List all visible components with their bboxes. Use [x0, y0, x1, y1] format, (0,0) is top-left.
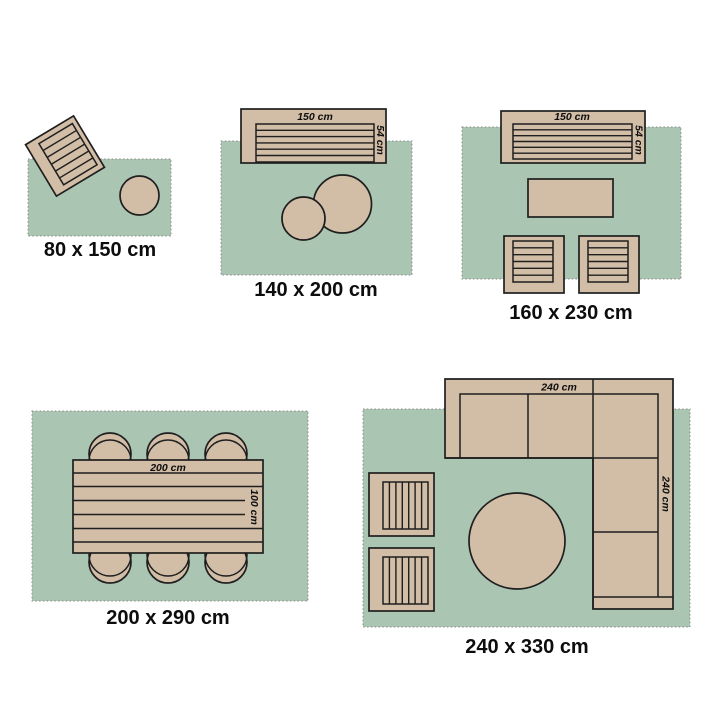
- chair-bottom: [369, 548, 434, 611]
- size-label: 200 x 290 cm: [106, 607, 229, 629]
- round-coffee-table: [469, 493, 565, 589]
- table-width-label: 200 cm: [149, 462, 186, 474]
- diagram-rug-240x330: 240 cm 240 cm 240 x 330 cm: [363, 379, 690, 658]
- diagram-rug-140x200: 150 cm 54 cm 140 x 200 cm: [221, 109, 412, 301]
- sofa-depth-label: 54 cm: [374, 125, 386, 155]
- diagram-rug-160x230: 150 cm 54 cm 160 x 230 cm: [462, 111, 681, 324]
- size-label: 80 x 150 cm: [44, 239, 156, 261]
- size-label: 240 x 330 cm: [465, 636, 588, 658]
- size-label: 160 x 230 cm: [509, 302, 632, 324]
- dining-table: 200 cm 100 cm: [73, 460, 263, 553]
- sofa-depth-label: 240 cm: [660, 475, 672, 512]
- sofa: 150 cm 54 cm: [241, 109, 386, 163]
- chair-top: [369, 473, 434, 536]
- sofa-width-label: 150 cm: [297, 111, 333, 123]
- size-guide-canvas: 80 x 150 cm 150 cm 54 cm 140 x 200 cm 15…: [0, 0, 720, 720]
- diagram-rug-80x150: 80 x 150 cm: [26, 116, 171, 261]
- rug-size-guide: 80 x 150 cm 150 cm 54 cm 140 x 200 cm 15…: [0, 0, 720, 720]
- table-depth-label: 100 cm: [248, 489, 260, 525]
- sofa: 150 cm 54 cm: [501, 111, 645, 163]
- sofa-depth-label: 54 cm: [633, 125, 645, 155]
- size-label: 140 x 200 cm: [254, 279, 377, 301]
- diagram-rug-200x290: 200 cm 100 cm 200 x 290 cm: [32, 411, 308, 629]
- chair-left: [504, 236, 564, 293]
- sofa-width-label: 150 cm: [554, 111, 590, 123]
- round-pouf: [120, 176, 159, 215]
- chair-right: [579, 236, 639, 293]
- sofa-width-label: 240 cm: [540, 382, 577, 394]
- pouf-small: [282, 197, 325, 240]
- coffee-table: [528, 179, 613, 217]
